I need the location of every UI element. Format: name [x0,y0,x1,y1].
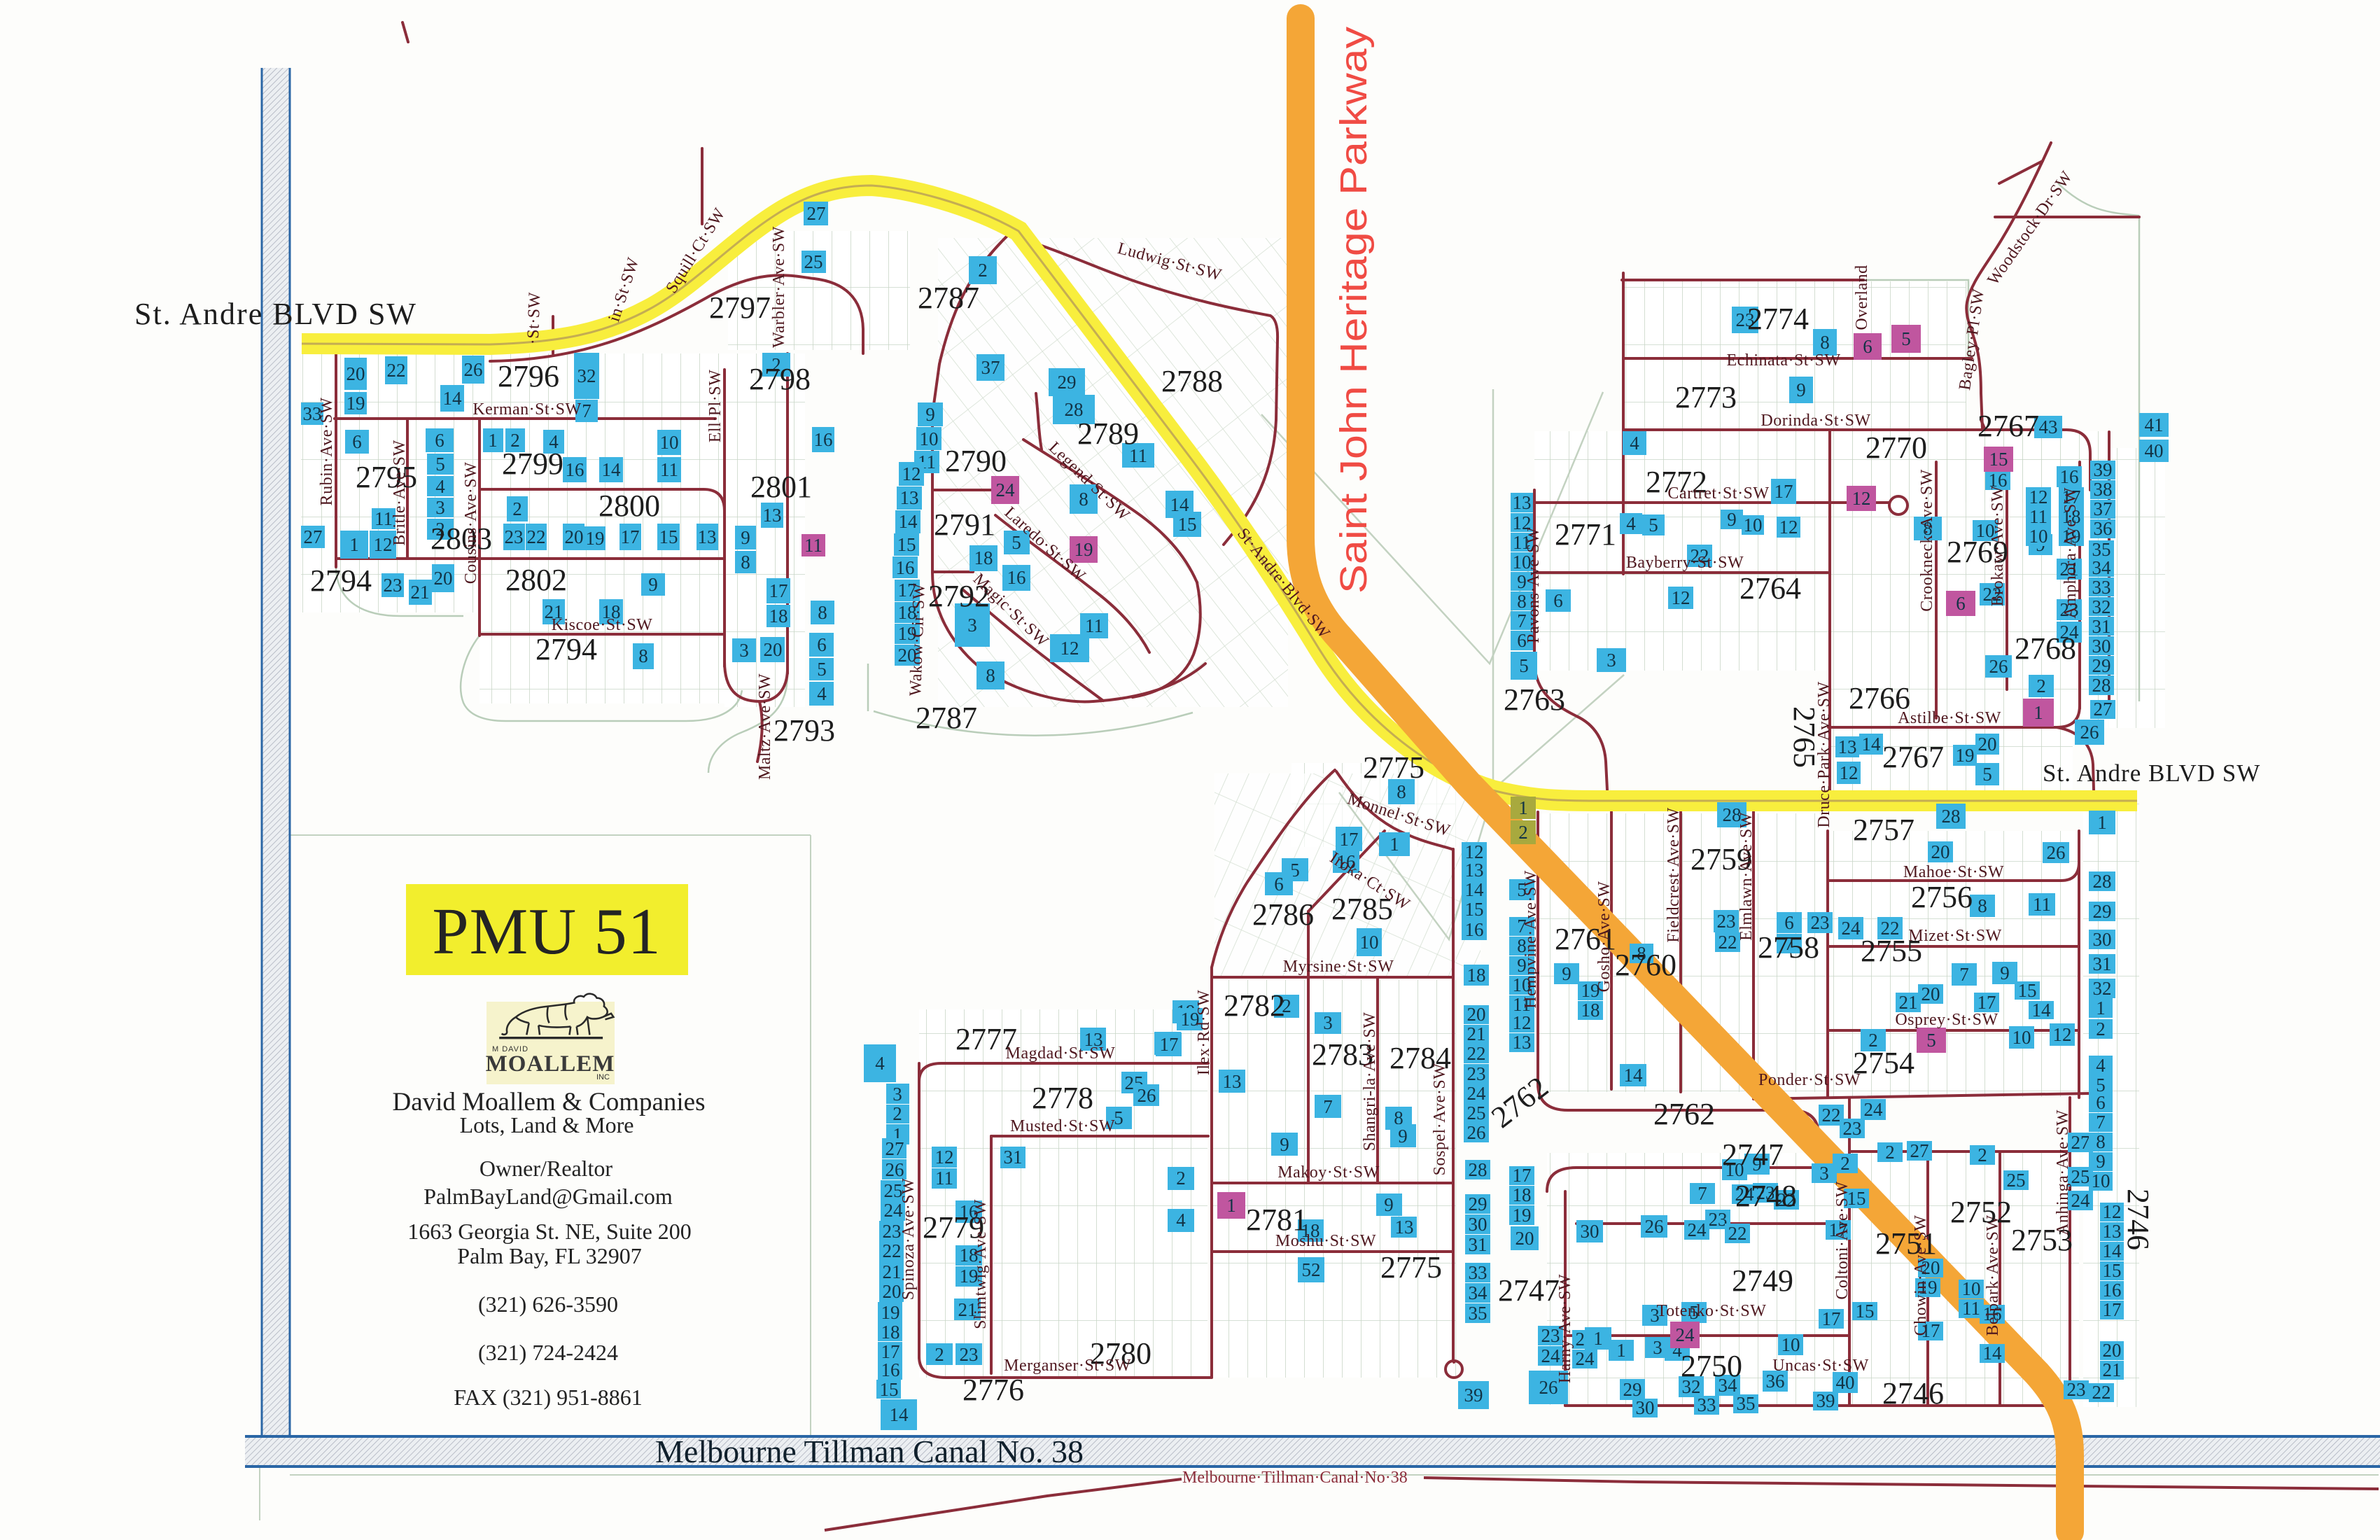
svg-text:Uncas·St·SW: Uncas·St·SW [1772,1357,1868,1375]
svg-text:17: 17 [1160,1034,1179,1055]
svg-text:23: 23 [1467,1063,1486,1084]
svg-text:21: 21 [1899,992,1918,1013]
svg-text:INC: INC [596,1073,610,1081]
svg-text:Totenko·St·SW: Totenko·St·SW [1657,1302,1767,1320]
svg-text:(321) 626-3590: (321) 626-3590 [478,1291,618,1317]
svg-text:2752: 2752 [1950,1195,2012,1229]
svg-text:18: 18 [974,547,993,568]
svg-text:St. Andre BLVD SW: St. Andre BLVD SW [134,297,417,331]
svg-text:Magdad·St·SW: Magdad·St·SW [1006,1044,1116,1063]
svg-text:16: 16 [814,429,833,450]
svg-text:17: 17 [1774,481,1793,502]
svg-text:1: 1 [1518,797,1528,818]
svg-text:Myrsine·St·SW: Myrsine·St·SW [1283,958,1394,976]
svg-text:17: 17 [621,526,640,547]
svg-text:2803: 2803 [430,521,492,556]
svg-text:2747: 2747 [1498,1273,1560,1308]
svg-text:27: 27 [2094,699,2113,720]
svg-text:10: 10 [660,432,679,453]
svg-text:21: 21 [411,582,430,603]
svg-text:8: 8 [986,665,995,686]
svg-text:29: 29 [1469,1193,1487,1214]
svg-text:27: 27 [885,1138,904,1159]
svg-text:9: 9 [741,527,750,548]
svg-text:23: 23 [1709,1209,1728,1230]
svg-text:19: 19 [1513,1205,1532,1226]
svg-text:15: 15 [2103,1260,2122,1281]
svg-text:2787: 2787 [918,281,979,315]
svg-text:Maltz·Ave·SW: Maltz·Ave·SW [756,673,774,780]
svg-text:7: 7 [2096,1112,2106,1133]
svg-text:5: 5 [1011,532,1021,553]
svg-text:33: 33 [2092,577,2111,598]
svg-text:5: 5 [1114,1107,1123,1128]
svg-text:38: 38 [2094,479,2113,500]
svg-text:14: 14 [1624,1065,1644,1086]
svg-text:20: 20 [2103,1340,2122,1361]
svg-text:39: 39 [1464,1385,1483,1406]
svg-text:4: 4 [1626,513,1636,534]
svg-text:35: 35 [1737,1393,1756,1414]
svg-text:24: 24 [1864,1099,1884,1120]
svg-text:20: 20 [1467,1004,1486,1025]
svg-text:14: 14 [602,459,622,480]
svg-text:30: 30 [1469,1214,1487,1235]
svg-text:22: 22 [1728,1223,1747,1244]
svg-text:26: 26 [1539,1377,1558,1398]
svg-text:Pavons·Ave·SW: Pavons·Ave·SW [1525,527,1543,643]
svg-text:16: 16 [2103,1280,2122,1301]
svg-text:13: 13 [900,487,919,508]
svg-text:26: 26 [1645,1216,1664,1237]
svg-text:13: 13 [1838,736,1857,757]
svg-text:2770: 2770 [1865,430,1927,465]
svg-text:9: 9 [925,404,935,425]
svg-text:Warbler·Ave·SW: Warbler·Ave·SW [770,226,788,348]
svg-text:16: 16 [896,557,915,578]
svg-text:2801: 2801 [750,470,812,504]
svg-text:(321) 724-2424: (321) 724-2424 [478,1340,618,1365]
svg-text:28: 28 [1942,806,1961,827]
svg-text:25: 25 [2007,1170,2026,1191]
svg-text:2762: 2762 [1653,1097,1715,1131]
svg-text:Lots, Land & More: Lots, Land & More [460,1112,634,1137]
svg-text:2774: 2774 [1747,302,1809,336]
svg-text:2756: 2756 [1911,880,1973,914]
svg-text:17: 17 [769,580,788,601]
svg-text:2: 2 [2096,1018,2106,1039]
svg-text:16: 16 [1007,567,1026,588]
svg-text:15: 15 [897,534,916,555]
svg-text:15: 15 [1465,899,1484,920]
svg-text:20: 20 [1931,841,1950,862]
svg-text:34: 34 [2092,557,2112,578]
svg-text:26: 26 [1989,656,2008,677]
svg-text:14: 14 [1862,734,1882,755]
svg-text:2782: 2782 [1224,988,1285,1023]
svg-text:6: 6 [2096,1092,2106,1113]
svg-text:19: 19 [881,1302,900,1323]
svg-text:10: 10 [920,428,939,449]
svg-text:14: 14 [2032,1000,2052,1021]
svg-text:2750: 2750 [1681,1349,1742,1383]
svg-text:31: 31 [1469,1234,1487,1255]
svg-text:20: 20 [346,363,365,384]
svg-text:17: 17 [1822,1308,1841,1329]
svg-text:26: 26 [2080,722,2099,743]
svg-text:4: 4 [875,1053,885,1074]
svg-text:20: 20 [1978,734,1997,755]
svg-text:17: 17 [2103,1299,2122,1320]
svg-text:5: 5 [435,454,445,475]
svg-text:6: 6 [435,430,444,451]
svg-text:9: 9 [1796,379,1806,400]
svg-text:12: 12 [1852,488,1871,509]
svg-text:18: 18 [1513,1184,1532,1205]
svg-text:25: 25 [1467,1102,1486,1123]
svg-text:29: 29 [2093,901,2112,922]
svg-text:2791: 2791 [934,507,995,542]
svg-text:11: 11 [804,535,822,556]
svg-text:2800: 2800 [598,489,660,523]
svg-text:39: 39 [2094,459,2113,480]
svg-text:2746: 2746 [1882,1376,1944,1410]
svg-text:5: 5 [817,659,827,680]
svg-text:2764: 2764 [1739,571,1801,605]
svg-text:29: 29 [1058,372,1077,393]
svg-text:5: 5 [1982,764,1992,785]
svg-text:Ilex·Rd·SW: Ilex·Rd·SW [1195,990,1213,1075]
svg-text:18: 18 [1467,965,1486,986]
svg-text:2797: 2797 [709,290,771,325]
svg-text:Kiscoe·St·SW: Kiscoe·St·SW [552,616,653,634]
svg-text:11: 11 [1085,615,1103,636]
svg-text:2798: 2798 [749,362,811,396]
svg-text:22: 22 [1467,1043,1486,1064]
svg-text:6: 6 [817,634,827,655]
svg-text:16: 16 [566,459,584,480]
svg-text:2: 2 [934,1344,944,1365]
svg-text:29: 29 [2092,655,2111,676]
svg-text:1: 1 [2097,812,2107,833]
svg-text:Amphora·Ave·SW: Amphora·Ave·SW [2061,487,2080,619]
svg-text:31: 31 [2093,953,2112,974]
svg-text:3: 3 [435,497,445,518]
svg-text:18: 18 [881,1322,900,1343]
svg-text:Merganser·St·SW: Merganser·St·SW [1004,1357,1131,1375]
svg-text:9: 9 [2096,1151,2106,1172]
svg-text:2776: 2776 [962,1373,1024,1407]
svg-text:16: 16 [2060,466,2079,487]
svg-text:11: 11 [1962,1298,1980,1319]
svg-text:9: 9 [1727,509,1737,530]
svg-text:12: 12 [1672,587,1690,608]
svg-text:10: 10 [1781,1334,1800,1355]
svg-text:9: 9 [1280,1134,1289,1155]
svg-text:30: 30 [1636,1397,1655,1418]
svg-text:2763: 2763 [1504,682,1565,717]
svg-text:2788: 2788 [1161,364,1223,398]
svg-text:13: 13 [1513,492,1532,513]
svg-text:Owner/Realtor: Owner/Realtor [479,1156,613,1181]
svg-text:2: 2 [978,260,988,281]
svg-text:26: 26 [885,1159,904,1180]
svg-text:12: 12 [1060,638,1079,659]
svg-text:9: 9 [1384,1194,1394,1215]
svg-text:32: 32 [577,365,596,386]
svg-text:2775: 2775 [1363,750,1424,785]
svg-text:2778: 2778 [1032,1081,1093,1115]
svg-text:17: 17 [1513,1165,1532,1186]
svg-text:14: 14 [1983,1343,2003,1364]
svg-text:13: 13 [1513,1032,1532,1053]
svg-text:12: 12 [2053,1024,2072,1045]
svg-text:15: 15 [880,1379,899,1400]
svg-text:20: 20 [434,568,453,589]
svg-text:2748: 2748 [1735,1179,1797,1213]
svg-text:26: 26 [1467,1122,1486,1143]
svg-text:Coltoni·Ave·SW: Coltoni·Ave·SW [1833,1181,1851,1299]
svg-text:Ell·Pl·SW: Ell·Pl·SW [706,370,724,443]
svg-text:2775: 2775 [1380,1250,1442,1284]
svg-text:2794: 2794 [310,563,372,598]
svg-text:21: 21 [1467,1023,1486,1044]
svg-text:12: 12 [374,534,393,555]
svg-text:37: 37 [981,357,1000,378]
svg-text:3: 3 [892,1084,902,1105]
svg-text:13: 13 [698,526,717,547]
svg-text:27: 27 [1910,1140,1929,1161]
svg-text:2799: 2799 [502,447,563,481]
svg-text:24: 24 [1576,1348,1595,1369]
svg-text:32: 32 [2093,978,2112,999]
svg-text:19: 19 [1956,745,1975,766]
svg-text:4: 4 [817,683,827,704]
svg-text:2: 2 [1176,1168,1186,1189]
svg-text:13: 13 [2103,1221,2122,1242]
svg-text:Chowin·Ave·SW: Chowin·Ave·SW [1912,1215,1930,1336]
svg-text:18: 18 [1581,1000,1600,1021]
svg-text:12: 12 [902,463,921,484]
svg-text:27: 27 [2071,1132,2090,1153]
svg-text:Mizet·St·SW: Mizet·St·SW [1908,927,2001,945]
svg-text:16: 16 [1465,919,1484,940]
svg-text:8: 8 [741,552,750,573]
svg-text:Overland: Overland [1853,265,1871,330]
svg-text:12: 12 [935,1147,954,1168]
svg-text:10: 10 [2092,1170,2110,1191]
svg-text:1: 1 [488,430,498,451]
svg-text:28: 28 [2092,675,2111,696]
svg-text:25: 25 [804,251,823,272]
svg-text:2793: 2793 [773,713,835,748]
svg-text:12: 12 [1779,517,1798,538]
svg-text:Anhinga·Ave·SW: Anhinga·Ave·SW [2054,1109,2072,1235]
svg-text:6: 6 [1553,590,1563,611]
svg-text:Moshu·St·SW: Moshu·St·SW [1275,1232,1376,1250]
svg-text:2768: 2768 [2015,631,2076,666]
svg-text:2: 2 [1840,1153,1850,1174]
svg-text:30: 30 [2092,636,2111,657]
svg-text:20: 20 [1921,983,1940,1004]
svg-text:9: 9 [648,574,658,595]
svg-text:25: 25 [2071,1166,2090,1187]
svg-text:Slimtwig·Ave·SW: Slimtwig·Ave·SW [972,1199,990,1329]
svg-text:2747: 2747 [1722,1137,1784,1172]
svg-text:24: 24 [1688,1219,1707,1240]
svg-text:24: 24 [996,479,1016,500]
svg-text:2757: 2757 [1853,813,1914,847]
svg-text:1: 1 [1593,1328,1603,1349]
svg-text:41: 41 [2145,414,2164,435]
svg-text:11: 11 [2033,894,2051,915]
svg-text:15: 15 [2018,980,2037,1001]
svg-text:43: 43 [2039,416,2058,437]
svg-text:26: 26 [464,359,483,380]
svg-text:Elmlawn·Ave·SW: Elmlawn·Ave·SW [1737,812,1756,941]
svg-text:3: 3 [1606,650,1616,671]
svg-text:22: 22 [2092,1382,2111,1403]
svg-text:7: 7 [1697,1183,1707,1204]
svg-text:2802: 2802 [505,563,567,597]
svg-text:14: 14 [2103,1240,2122,1261]
svg-text:11: 11 [660,459,678,480]
svg-text:5: 5 [1519,655,1529,676]
svg-text:Astilbe·St·SW: Astilbe·St·SW [1898,709,2001,727]
svg-text:23: 23 [1843,1118,1862,1139]
svg-text:20: 20 [883,1281,902,1302]
svg-text:22: 22 [883,1240,902,1261]
svg-text:10: 10 [2029,526,2048,547]
svg-text:14: 14 [890,1404,909,1425]
svg-text:2758: 2758 [1758,930,1819,965]
svg-text:22: 22 [1822,1105,1841,1126]
svg-text:19: 19 [346,393,365,414]
svg-text:30: 30 [2093,929,2112,950]
svg-text:Druce·Park·Ave·SW: Druce·Park·Ave·SW [1815,681,1833,827]
svg-text:2767: 2767 [1977,409,2039,443]
svg-text:2771: 2771 [1555,517,1616,552]
svg-text:2773: 2773 [1675,380,1737,414]
svg-text:52: 52 [1302,1259,1321,1280]
svg-text:34: 34 [1469,1282,1488,1303]
svg-text:2: 2 [1977,1144,1987,1165]
svg-text:8: 8 [2096,1131,2106,1152]
svg-text:Bayberry·St·SW: Bayberry·St·SW [1626,554,1744,572]
svg-text:27: 27 [807,203,826,224]
svg-text:2754: 2754 [1853,1046,1914,1080]
svg-text:19: 19 [1074,539,1093,560]
svg-text:19: 19 [586,528,605,549]
svg-text:10: 10 [1744,514,1763,535]
svg-text:Mahoe·St·SW: Mahoe·St·SW [1903,863,2004,881]
svg-text:2789: 2789 [1077,416,1139,451]
svg-text:17: 17 [1340,829,1359,850]
svg-text:6: 6 [1863,336,1872,357]
svg-text:27: 27 [304,526,323,547]
svg-text:12: 12 [1513,1012,1532,1033]
svg-text:15: 15 [1989,449,2008,470]
svg-text:13: 13 [1465,860,1484,881]
svg-text:Ponder·St·SW: Ponder·St·SW [1758,1071,1861,1089]
svg-text:13: 13 [1395,1217,1414,1238]
svg-text:10: 10 [1962,1278,1981,1299]
svg-text:3: 3 [1819,1163,1829,1184]
svg-text:Crookneck·Ave·SW: Crookneck·Ave·SW [1918,469,1936,612]
svg-text:3: 3 [967,615,977,636]
svg-text:Saint John Heritage Parkway: Saint John Heritage Parkway [1333,27,1375,594]
svg-text:20: 20 [1515,1228,1534,1249]
svg-text:11: 11 [935,1168,953,1189]
svg-text:1: 1 [1226,1195,1236,1216]
svg-text:8: 8 [1977,895,1987,916]
svg-text:Dorinda·St·SW: Dorinda·St·SW [1760,412,1870,430]
svg-text:Sospel·Ave·SW: Sospel·Ave·SW [1431,1063,1449,1176]
svg-text:Melbourne Tillman Canal No. 38: Melbourne Tillman Canal No. 38 [655,1434,1084,1469]
svg-text:21: 21 [2103,1359,2122,1380]
svg-text:8: 8 [638,645,648,666]
svg-text:4: 4 [435,476,445,497]
svg-text:20: 20 [764,639,783,660]
svg-text:Rubin·Ave·SW: Rubin·Ave·SW [318,398,336,506]
svg-text:2767: 2767 [1882,740,1944,774]
svg-text:Makoy·St·SW: Makoy·St·SW [1277,1163,1380,1182]
svg-text:Britle·Ave·SW: Britle·Ave·SW [391,440,409,545]
svg-text:35: 35 [1469,1303,1487,1324]
svg-text:2: 2 [512,498,522,519]
svg-text:3: 3 [1653,1337,1662,1358]
svg-text:2: 2 [892,1103,902,1124]
svg-text:1: 1 [2033,702,2043,723]
svg-text:Osprey·St·SW: Osprey·St·SW [1895,1011,1998,1029]
svg-text:31: 31 [2092,616,2111,637]
svg-text:26: 26 [2047,842,2066,863]
svg-text:33: 33 [1697,1394,1716,1415]
svg-text:8: 8 [1820,332,1830,353]
svg-text:6: 6 [1274,874,1284,895]
svg-text:Cousins·Ave·SW: Cousins·Ave·SW [462,462,480,584]
svg-text:Echinata·St·SW: Echinata·St·SW [1727,351,1841,370]
svg-text:22: 22 [527,526,546,547]
svg-text:2760: 2760 [1615,948,1676,982]
svg-text:Cartret·St·SW: Cartret·St·SW [1667,484,1769,503]
svg-text:17: 17 [1977,992,1996,1013]
svg-text:11: 11 [2029,506,2047,527]
svg-text:FAX (321) 951-8861: FAX (321) 951-8861 [454,1385,643,1410]
svg-text:39: 39 [1816,1390,1835,1411]
svg-text:Fieldcrest·Ave·SW: Fieldcrest·Ave·SW [1665,807,1683,942]
svg-text:PalmBayLand@Gmail.com: PalmBayLand@Gmail.com [423,1184,673,1209]
svg-text:31: 31 [1004,1147,1023,1168]
svg-text:28: 28 [1469,1159,1487,1180]
svg-text:36: 36 [2094,518,2113,539]
svg-text:37: 37 [2094,498,2113,519]
svg-text:22: 22 [1718,932,1737,953]
svg-text:St. Andre BLVD SW: St. Andre BLVD SW [2043,759,2260,787]
svg-text:14: 14 [899,511,918,532]
svg-text:23: 23 [1717,911,1736,932]
svg-text:Spinoza·Ave·SW: Spinoza·Ave·SW [899,1178,918,1301]
svg-text:2796: 2796 [498,359,559,393]
svg-text:9: 9 [2000,962,2010,983]
svg-text:4: 4 [2096,1055,2106,1076]
svg-text:24: 24 [1467,1083,1487,1104]
svg-text:20: 20 [565,526,584,547]
svg-text:2749: 2749 [1732,1263,1793,1298]
svg-text:10: 10 [2012,1027,2031,1048]
svg-text:3: 3 [739,640,749,661]
svg-text:7: 7 [1323,1096,1333,1117]
